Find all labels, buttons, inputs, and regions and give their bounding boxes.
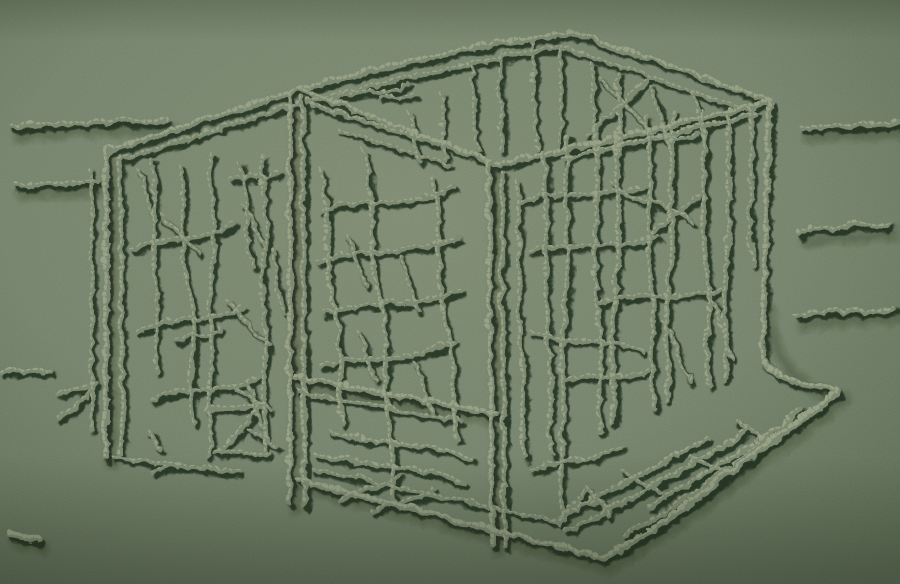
relief-artwork [0, 0, 900, 584]
artwork-canvas [0, 0, 900, 584]
background-top-shade [0, 0, 900, 584]
